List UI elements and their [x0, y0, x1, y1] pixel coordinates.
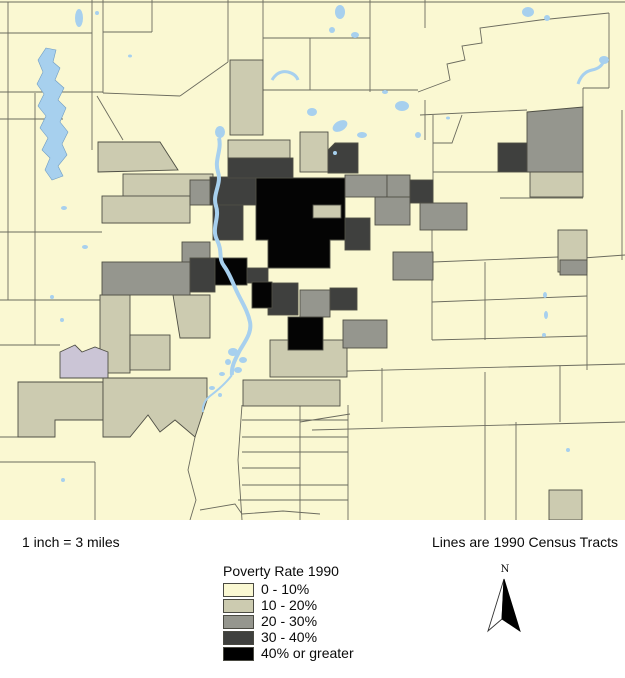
- legend-label: 0 - 10%: [261, 583, 309, 596]
- north-label: N: [479, 564, 531, 575]
- tract-enclave: [313, 205, 341, 218]
- census-tract-map: [0, 0, 625, 520]
- page: 1 inch = 3 miles Lines are 1990 Census T…: [0, 0, 625, 678]
- legend-label: 30 - 40%: [261, 631, 317, 644]
- legend-swatch-30-40: [223, 631, 254, 645]
- legend-swatch-20-30: [223, 615, 254, 629]
- legend-row: 20 - 30%: [223, 615, 398, 628]
- legend-label: 10 - 20%: [261, 599, 317, 612]
- legend-label: 20 - 30%: [261, 615, 317, 628]
- legend-label: 40% or greater: [261, 647, 354, 660]
- north-arrow: N: [479, 564, 531, 633]
- legend-row: 40% or greater: [223, 647, 398, 660]
- census-tract-note: Lines are 1990 Census Tracts: [432, 534, 618, 550]
- legend-row: 30 - 40%: [223, 631, 398, 644]
- scale-text: 1 inch = 3 miles: [22, 534, 120, 550]
- legend-row: 0 - 10%: [223, 583, 398, 596]
- legend: Poverty Rate 1990 0 - 10% 10 - 20% 20 - …: [223, 563, 398, 663]
- legend-row: 10 - 20%: [223, 599, 398, 612]
- legend-swatch-40-plus: [223, 647, 254, 661]
- legend-swatch-0-10: [223, 583, 254, 597]
- map-area: [0, 0, 625, 520]
- legend-title: Poverty Rate 1990: [223, 563, 398, 579]
- legend-swatch-10-20: [223, 599, 254, 613]
- north-arrow-icon: [487, 577, 523, 633]
